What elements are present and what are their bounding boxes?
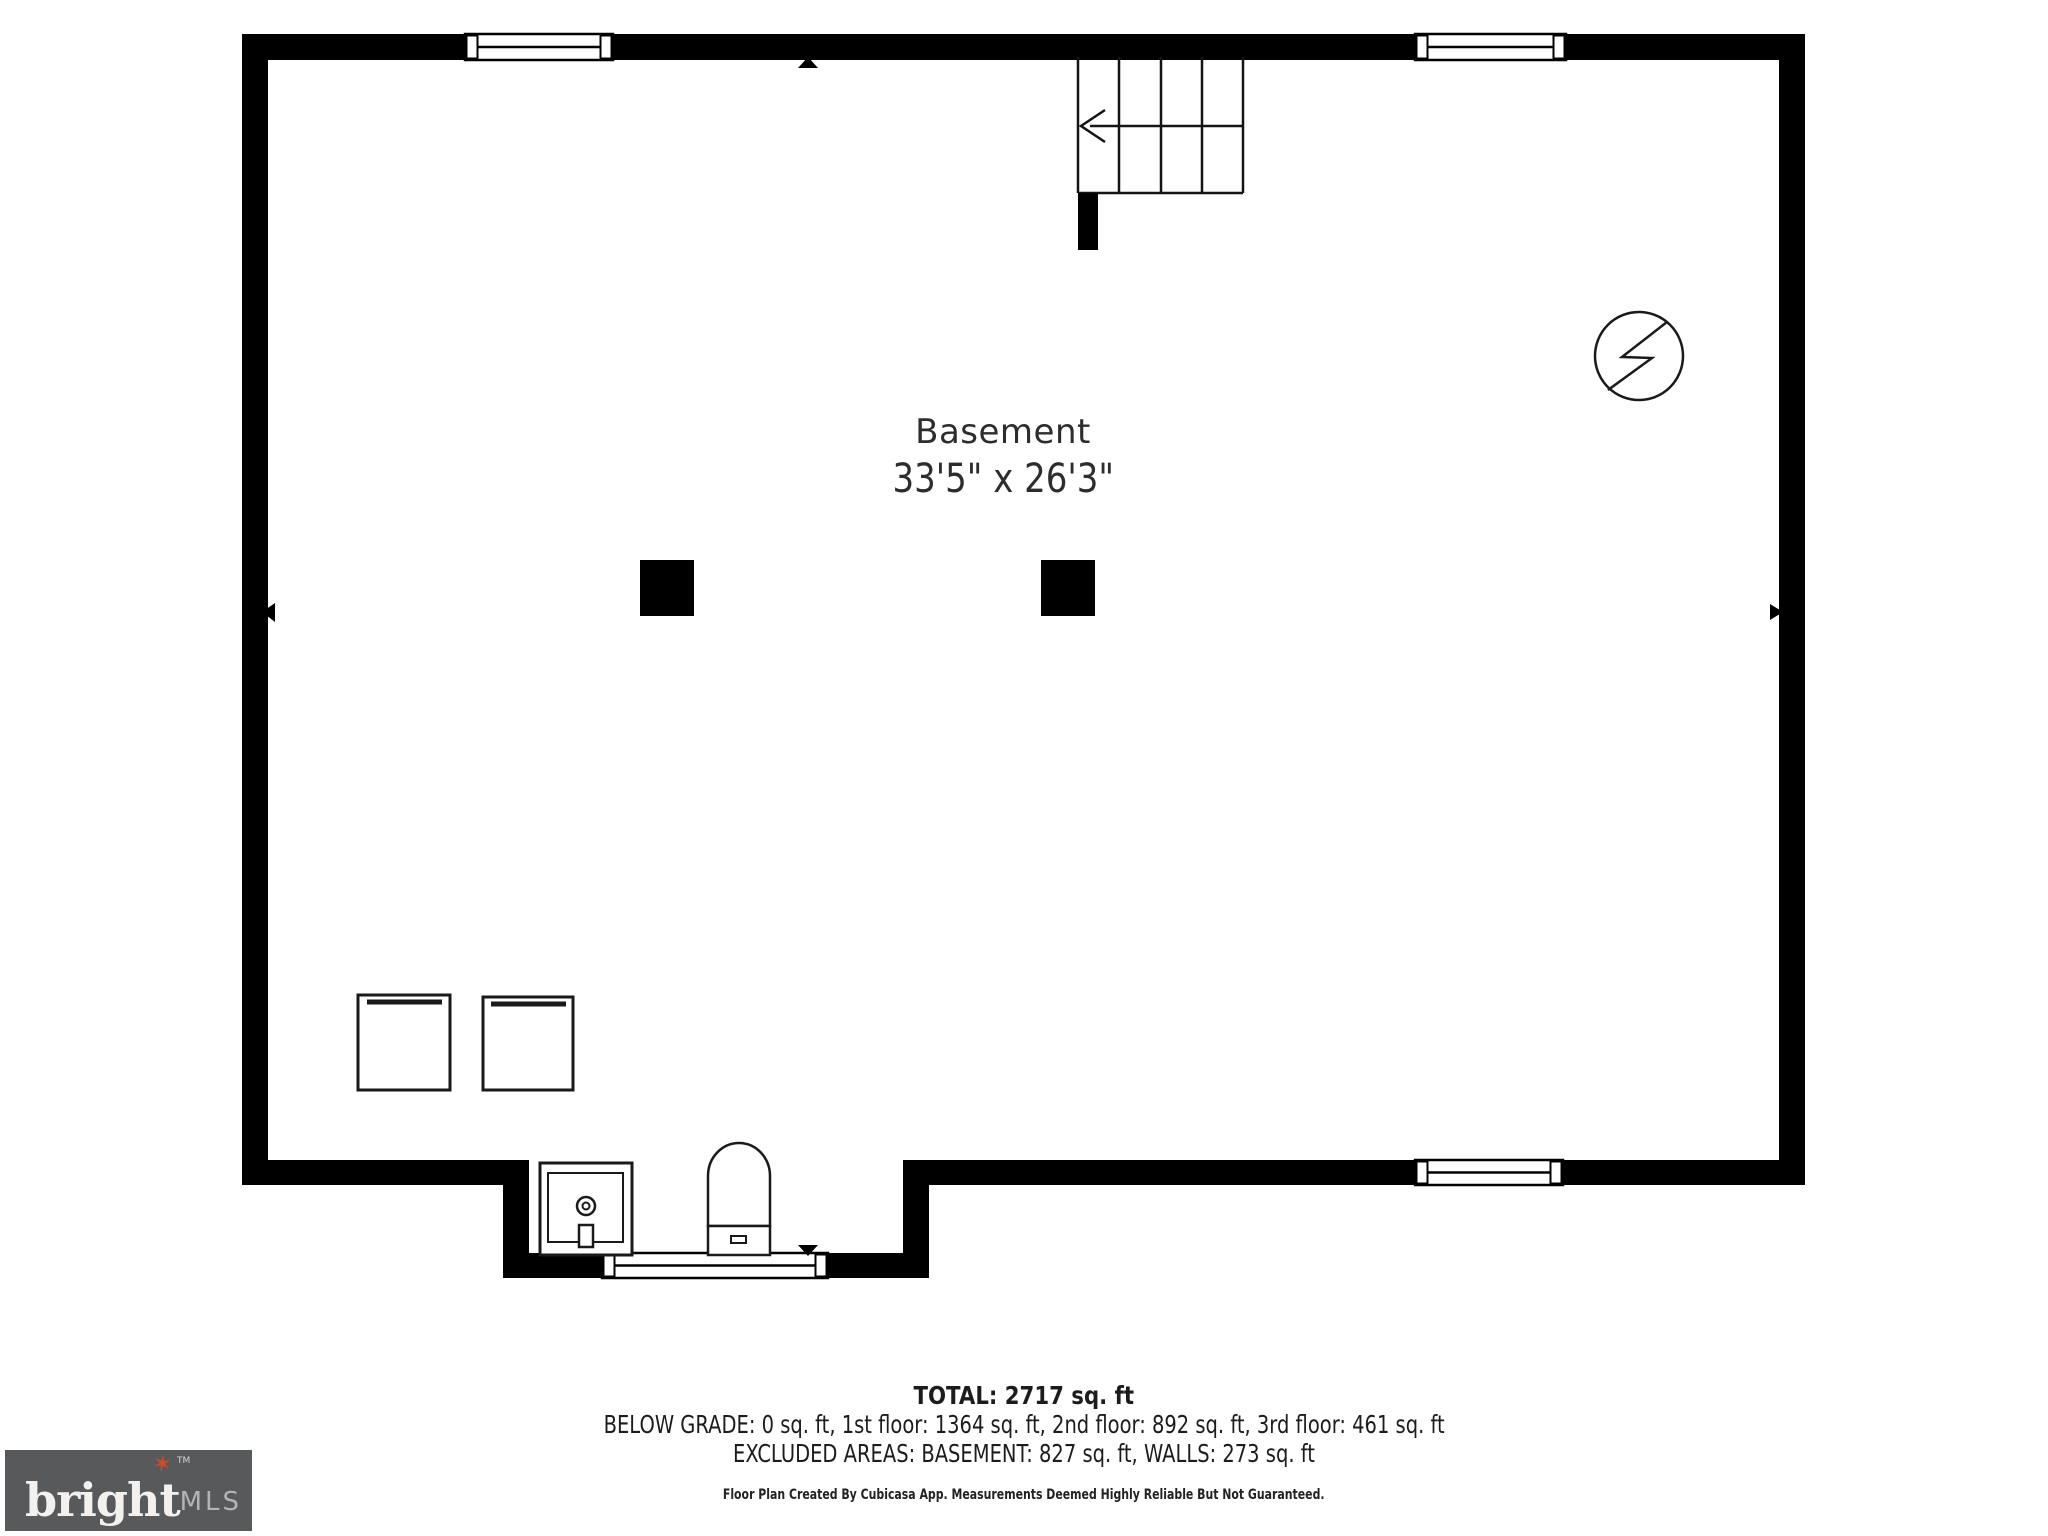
wall-left — [242, 34, 268, 1185]
utility-circle — [1595, 312, 1683, 400]
logo-trademark: TM — [177, 1456, 190, 1466]
exterior-walls — [242, 34, 1805, 1278]
logo-mls-text: MLS — [180, 1489, 242, 1515]
total-area-label: TOTAL: 2717 sq. ft — [0, 1381, 2048, 1410]
window-extension-bottom — [602, 1253, 828, 1278]
window-top-left — [465, 34, 613, 60]
lightning-icon — [1608, 322, 1667, 390]
support-post-left — [640, 560, 694, 616]
floor-plan-drawing — [0, 0, 2048, 1536]
disclaimer-label: Floor Plan Created By Cubicasa App. Meas… — [0, 1487, 2048, 1503]
wall-right — [1779, 34, 1805, 1185]
water-heater-symbol — [1595, 312, 1683, 400]
toilet — [708, 1143, 770, 1255]
room-name-label: Basement — [0, 412, 2027, 452]
logo-brand-text: bright — [25, 1477, 180, 1523]
utility-sink — [540, 1163, 632, 1255]
support-post-right — [1041, 560, 1095, 616]
excluded-areas-label: EXCLUDED AREAS: BASEMENT: 827 sq. ft, WA… — [0, 1439, 2048, 1468]
toilet-flush-button — [731, 1236, 746, 1243]
stair-wall-stub — [1078, 193, 1098, 250]
bright-mls-logo: bright ✶ TM MLS — [5, 1450, 252, 1531]
wall-bottom-right — [903, 1160, 1805, 1185]
window-top-right — [1415, 34, 1566, 60]
toilet-bowl — [708, 1143, 770, 1226]
appliance-right — [483, 997, 573, 1090]
appliance-left — [358, 995, 450, 1090]
sink-faucet — [579, 1225, 593, 1247]
staircase — [1078, 57, 1243, 193]
room-dimensions-label: 33'5" x 26'3" — [0, 456, 2027, 502]
wall-bottom-left — [242, 1160, 529, 1185]
floor-plan-page: Basement 33'5" x 26'3" TOTAL: 2717 sq. f… — [0, 0, 2048, 1536]
window-bottom-right — [1415, 1160, 1563, 1185]
logo-star-icon: ✶ — [150, 1451, 173, 1478]
floor-areas-label: BELOW GRADE: 0 sq. ft, 1st floor: 1364 s… — [0, 1410, 2048, 1439]
